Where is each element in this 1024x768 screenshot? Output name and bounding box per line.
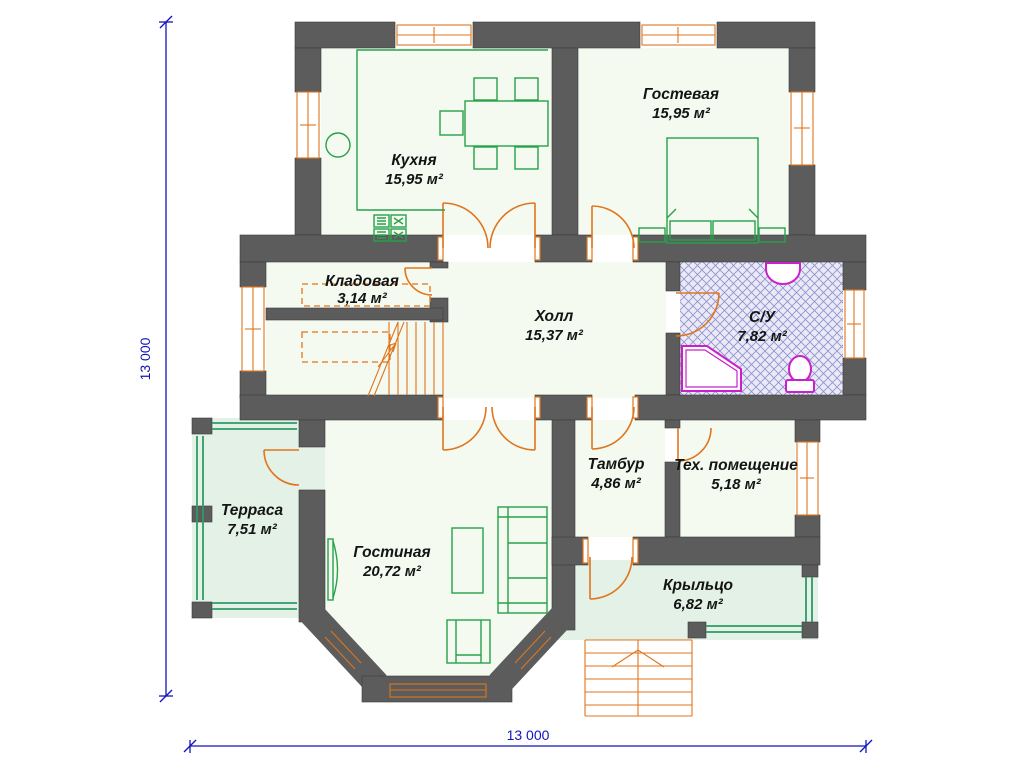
wall-segment [552,420,575,630]
bay-wall-bottom [362,676,512,702]
floor-plan-canvas: 13 000 13 000 Кухня 15,95 м² Гостевая 15… [0,0,1024,768]
vestibule-area: 4,86 м² [590,475,641,492]
storage-label: Кладовая [325,273,399,290]
porch-post [802,622,818,638]
bathroom-area: 7,82 м² [737,328,787,345]
washbasin [766,263,800,284]
kitchen-area: 15,95 м² [385,171,444,188]
wall-segment [240,262,266,287]
guest-area: 15,95 м² [652,105,711,122]
terrace-label: Терраса [221,502,284,519]
room-floors [192,48,843,678]
kitchen-label: Кухня [391,152,436,169]
wall-segment [473,22,640,48]
wall-segment [299,490,325,622]
wall-segment [717,22,815,48]
wall-segment [266,308,443,320]
wall-segment [535,395,592,420]
exterior-steps [585,640,692,716]
dimension-bottom: 13 000 [184,727,872,753]
wall-segment [240,371,266,398]
kitchen-left-window [297,92,319,158]
wall-segment [843,262,866,290]
door-jamb [583,539,588,563]
storage-left-window [242,287,264,371]
wall-segment [789,48,815,92]
terrace-post [192,602,212,618]
vestibule-label: Тамбур [588,456,645,473]
porch-label: Крыльцо [663,577,733,594]
wall-segment [295,48,321,92]
guest-top-window [642,25,715,45]
toilet [786,356,814,392]
guest-right-window [791,92,813,165]
storage-area: 3,14 м² [337,290,387,307]
wall-segment [635,395,866,420]
wall-segment [240,395,443,420]
dimension-left: 13 000 [137,16,173,702]
terrace-area: 7,51 м² [227,521,277,538]
door-jamb [633,539,638,563]
porch-post [688,622,706,638]
wall-segment [665,420,680,428]
floor-plan-page: 13 000 13 000 Кухня 15,95 м² Гостевая 15… [0,0,1024,768]
dimension-width-label: 13 000 [507,727,550,743]
bathroom-label: С/У [749,309,777,326]
wall-segment [795,420,820,442]
hall-area: 15,37 м² [525,327,584,344]
kitchen-top-window [397,25,471,45]
terrace-post [192,418,212,434]
wall-segment [295,158,321,235]
wall-segment [666,333,680,395]
guest-label: Гостевая [643,86,719,103]
tech-label: Тех. помещение [674,457,798,474]
tech-area: 5,18 м² [711,476,761,493]
wall-segment [633,235,866,262]
wall-segment [535,235,592,262]
wall-segment [795,515,820,537]
wall-segment [633,537,820,565]
wall-segment [552,48,578,235]
bathroom-right-window [845,290,864,358]
porch-area: 6,82 м² [673,596,723,613]
wall-segment [666,262,680,291]
porch-post [802,565,818,577]
wall-segment [789,165,815,235]
wall-segment [430,262,448,268]
terrace-post [192,506,212,522]
tech-right-window [797,442,818,515]
wall-segment [843,358,866,395]
wall-segment [295,22,395,48]
dimension-height-label: 13 000 [137,337,153,380]
wall-segment [299,420,325,447]
hall-label: Холл [534,308,574,325]
wall-segment [240,235,443,262]
living-label: Гостиная [353,544,430,561]
living-area: 20,72 м² [362,563,422,580]
